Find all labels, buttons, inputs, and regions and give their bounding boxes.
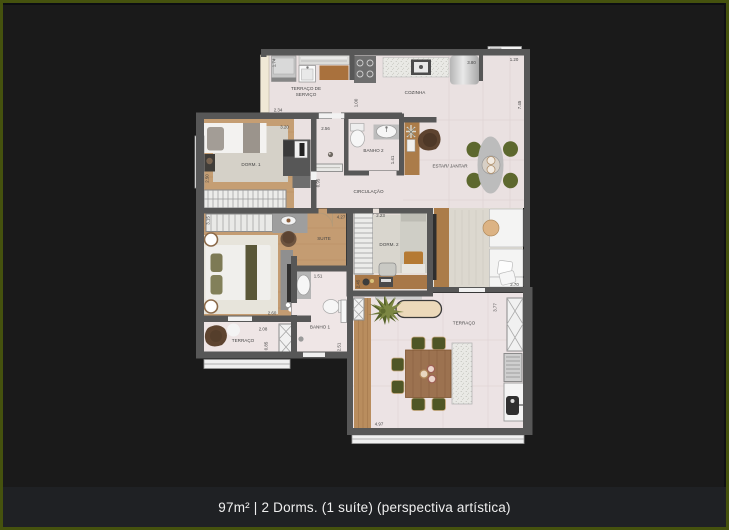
svg-text:CIRCULAÇÃO: CIRCULAÇÃO [353,188,384,194]
svg-text:2.34: 2.34 [274,108,283,113]
svg-text:3.15: 3.15 [206,216,211,225]
svg-text:TERRAÇO DE: TERRAÇO DE [291,86,321,91]
svg-text:3.80: 3.80 [467,60,476,65]
svg-text:3.20: 3.20 [280,125,289,130]
svg-text:BANHO 2: BANHO 2 [363,148,384,153]
svg-text:2.70: 2.70 [510,282,519,287]
svg-text:0.95: 0.95 [316,178,321,187]
svg-text:1.20: 1.20 [510,57,519,62]
svg-text:4.97: 4.97 [375,422,384,427]
svg-text:2.23: 2.23 [376,213,385,218]
svg-text:SUITE: SUITE [317,236,331,241]
svg-text:7.45: 7.45 [517,100,522,109]
svg-text:2.08: 2.08 [259,327,268,332]
svg-text:2.51: 2.51 [337,342,342,351]
svg-text:ESTAR/ JANTAR: ESTAR/ JANTAR [432,164,468,169]
svg-text:2.56: 2.56 [321,126,330,131]
svg-text:2.60: 2.60 [268,311,277,316]
svg-text:DORM. 2: DORM. 2 [379,242,399,247]
svg-text:1.41: 1.41 [390,155,395,164]
svg-text:1.51: 1.51 [314,274,323,279]
svg-text:0.85: 0.85 [264,341,269,350]
svg-text:TERRAÇO: TERRAÇO [232,338,255,343]
svg-text:TERRAÇO: TERRAÇO [453,321,476,326]
svg-text:4.27: 4.27 [337,215,346,220]
svg-text:2.45: 2.45 [356,279,361,288]
svg-text:3.77: 3.77 [493,303,498,312]
svg-text:COZINHA: COZINHA [405,90,427,95]
svg-text:1.74: 1.74 [272,58,277,67]
svg-text:BANHO 1: BANHO 1 [310,325,331,330]
svg-text:1.00: 1.00 [354,98,359,107]
svg-text:2.50: 2.50 [205,174,210,183]
svg-text:SERVIÇO: SERVIÇO [296,92,317,97]
svg-text:DORM. 1: DORM. 1 [241,162,261,167]
